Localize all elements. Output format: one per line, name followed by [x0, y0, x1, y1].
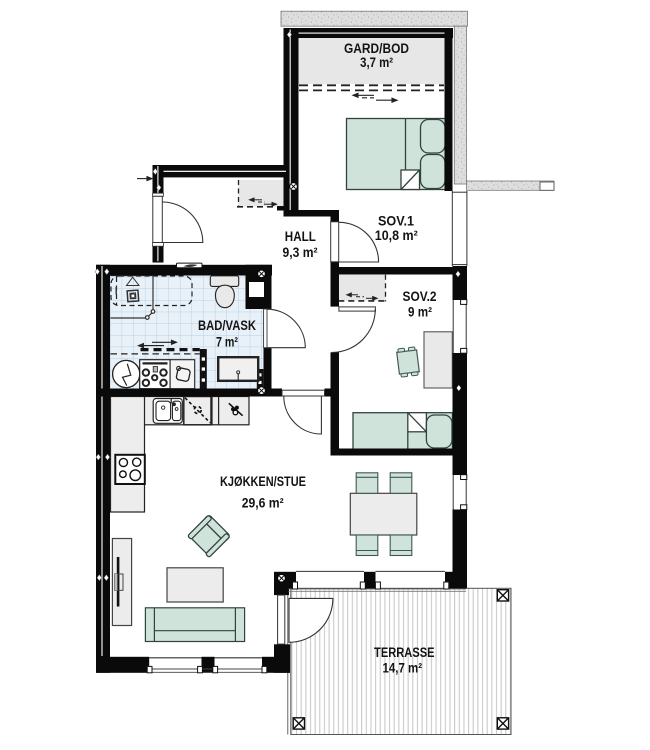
- svg-text:SOV.1: SOV.1: [378, 214, 414, 229]
- svg-text:BAD/VASK: BAD/VASK: [198, 318, 256, 333]
- svg-text:29,6 m²: 29,6 m²: [242, 496, 284, 511]
- svg-text:KJØKKEN/STUE: KJØKKEN/STUE: [220, 474, 306, 489]
- svg-text:HALL: HALL: [285, 229, 316, 244]
- svg-text:GARD/BOD: GARD/BOD: [344, 41, 409, 56]
- svg-text:7 m²: 7 m²: [216, 335, 238, 350]
- svg-text:SOV.2: SOV.2: [403, 289, 437, 304]
- svg-text:9,3 m²: 9,3 m²: [283, 245, 318, 260]
- svg-text:9 m²: 9 m²: [408, 305, 432, 320]
- svg-text:14,7 m²: 14,7 m²: [383, 661, 423, 676]
- svg-text:10,8 m²: 10,8 m²: [375, 228, 418, 243]
- svg-text:3,7 m²: 3,7 m²: [360, 55, 393, 70]
- svg-text:TERRASSE: TERRASSE: [374, 645, 435, 660]
